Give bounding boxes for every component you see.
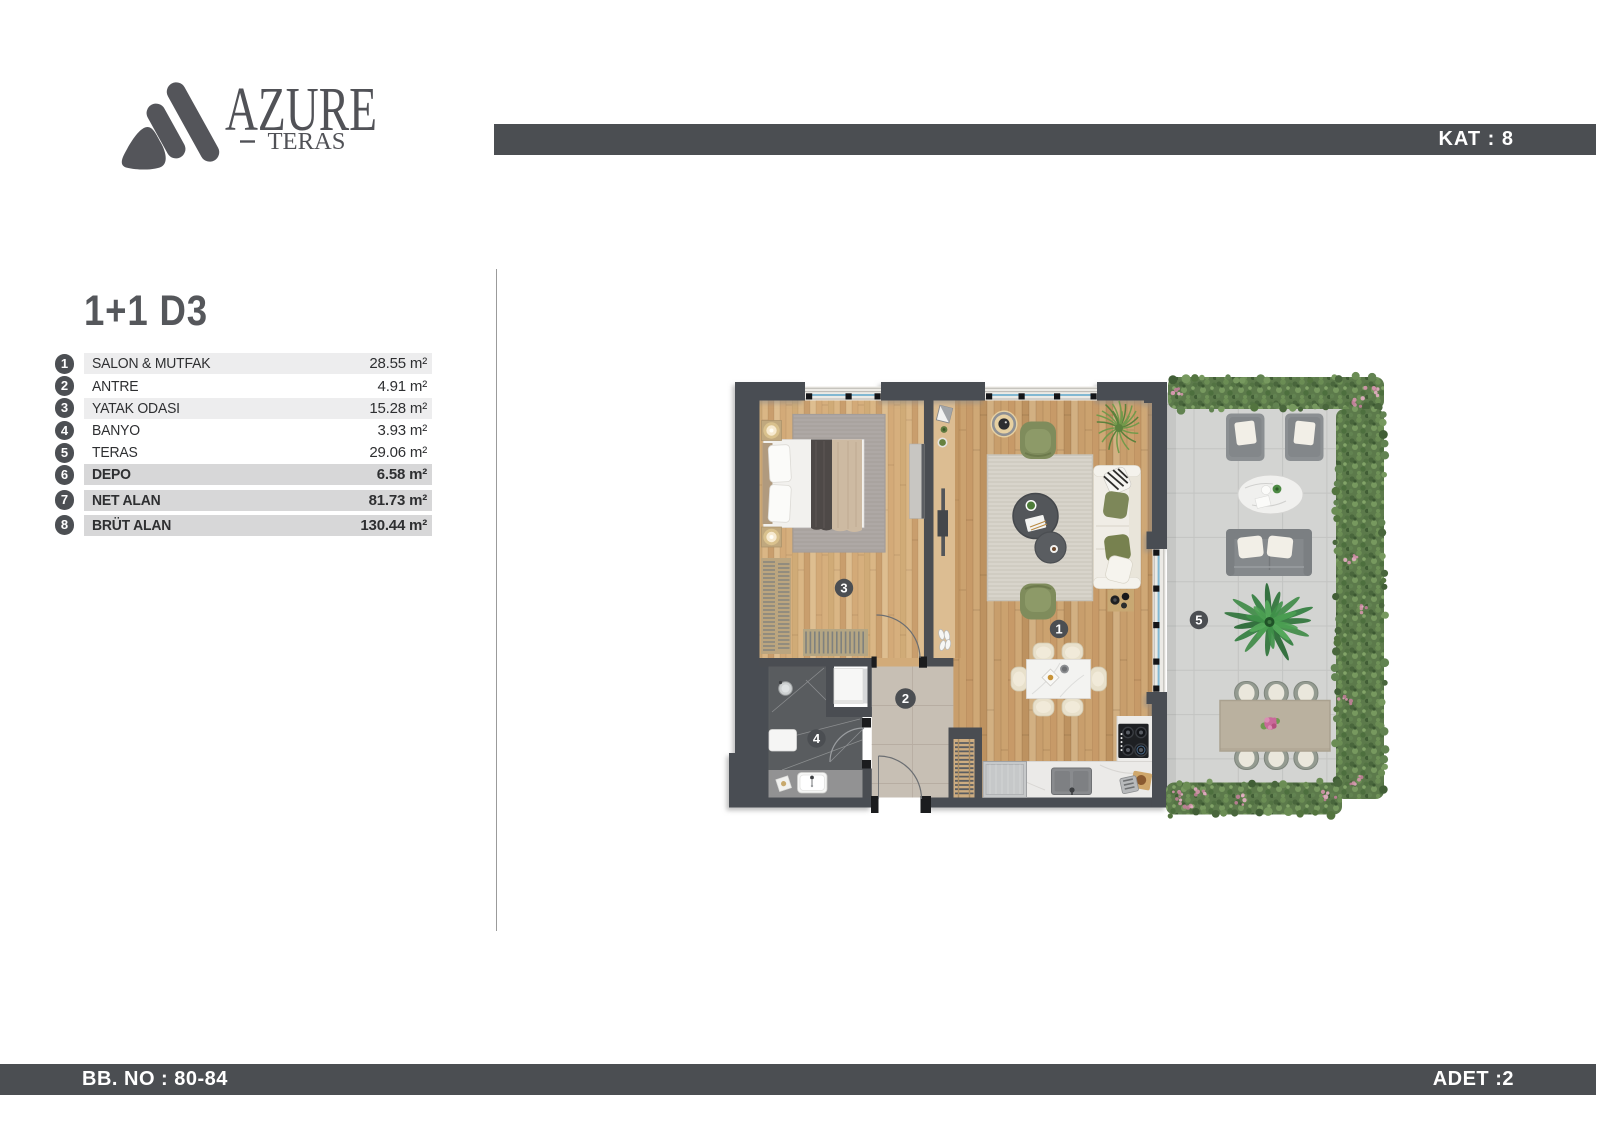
svg-text:3: 3 — [840, 581, 847, 596]
svg-text:4: 4 — [813, 731, 821, 746]
svg-text:1: 1 — [1055, 622, 1062, 637]
svg-text:5: 5 — [1195, 613, 1202, 628]
svg-text:2: 2 — [902, 691, 909, 706]
